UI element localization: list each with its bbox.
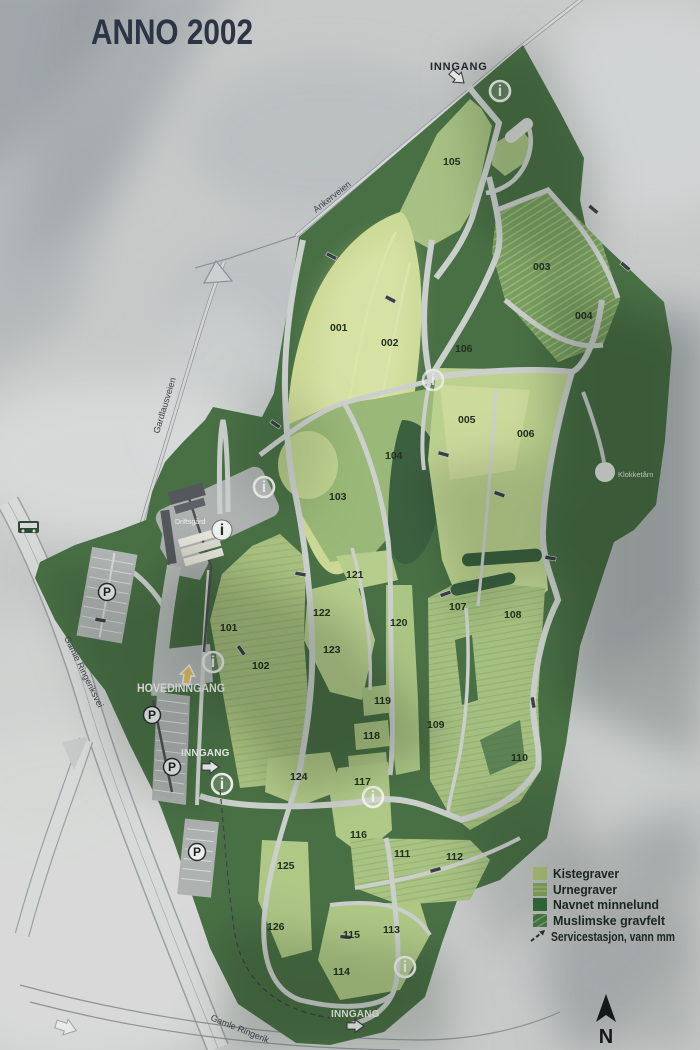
svg-text:104: 104	[385, 450, 403, 462]
svg-text:006: 006	[517, 428, 535, 440]
svg-text:103: 103	[329, 491, 347, 503]
svg-text:110: 110	[511, 752, 528, 764]
svg-text:i: i	[371, 789, 375, 806]
svg-text:108: 108	[504, 609, 522, 621]
svg-text:106: 106	[455, 343, 473, 355]
svg-text:ANNO 2002: ANNO 2002	[91, 13, 253, 52]
svg-text:112: 112	[446, 851, 463, 863]
svg-text:Driftsgård: Driftsgård	[175, 518, 205, 526]
svg-text:i: i	[431, 372, 435, 389]
svg-text:002: 002	[381, 337, 399, 349]
svg-text:i: i	[220, 522, 224, 539]
svg-text:121: 121	[346, 569, 364, 581]
svg-text:111: 111	[394, 848, 411, 860]
svg-text:105: 105	[443, 156, 461, 168]
svg-text:P: P	[193, 845, 201, 859]
svg-text:113: 113	[383, 924, 400, 936]
svg-text:125: 125	[277, 860, 295, 872]
svg-text:001: 001	[330, 322, 348, 334]
svg-text:116: 116	[350, 829, 367, 841]
svg-text:005: 005	[458, 414, 476, 426]
svg-text:003: 003	[533, 261, 551, 273]
svg-text:120: 120	[390, 617, 408, 629]
